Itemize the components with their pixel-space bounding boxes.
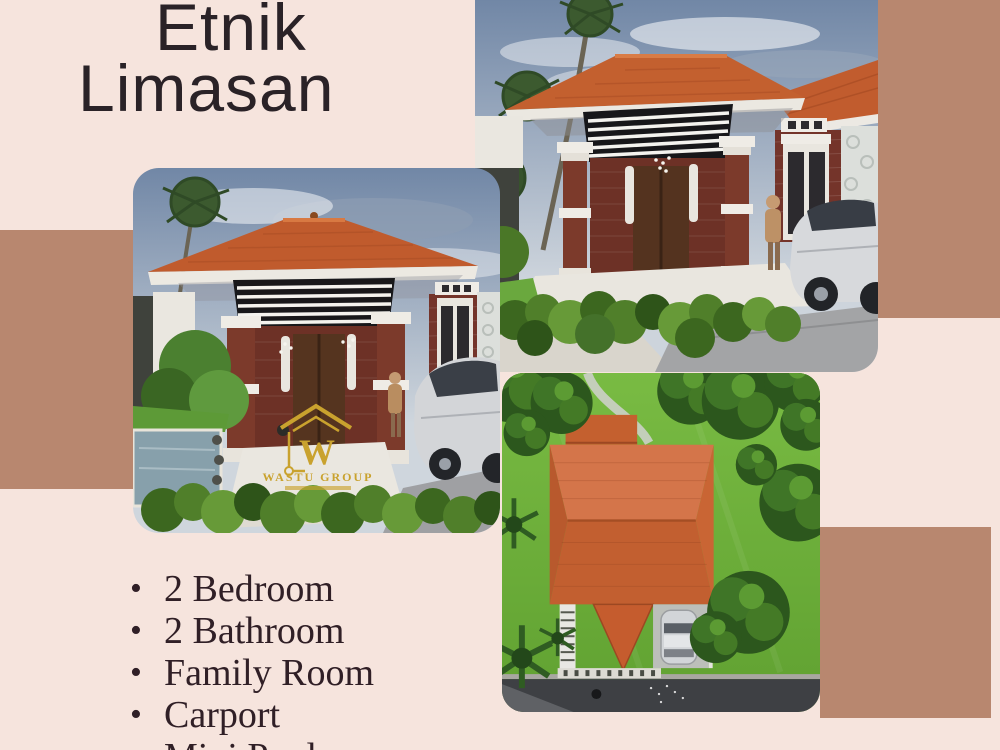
feature-item: • 2 Bathroom [130,610,374,652]
watermark-brand-text: WASTU GROUP [262,470,373,484]
feature-label: 2 Bedroom [164,568,334,610]
bullet-icon: • [130,736,164,750]
front-fence [558,668,661,678]
roof-aerial [550,415,714,678]
entry-door [243,326,393,448]
accent-block-left [0,230,133,489]
bullet-icon: • [130,652,164,694]
feature-label: Carport [164,694,280,736]
accent-block-top-right [878,0,1000,318]
feature-label: 2 Bathroom [164,610,344,652]
bullet-icon: • [130,610,164,652]
flyer-page: Etnik Limasan [0,0,1000,750]
feature-label: Family Room [164,652,374,694]
feature-label: Mini Pool [164,736,317,750]
car [414,357,500,483]
entry-door [590,156,730,274]
feature-item: • Family Room [130,652,374,694]
accent-block-bottom-right [820,527,991,718]
feature-item: • 2 Bedroom [130,568,374,610]
photo-front-view-secondary: W WASTU GROUP [133,168,500,533]
watermark-monogram: W [299,432,337,472]
feature-item: • Mini Pool [130,736,374,750]
page-title-line2: Limasan [78,55,334,121]
photo-aerial-view [502,373,820,712]
car [790,200,878,314]
road [502,674,820,712]
photo-front-view-main [475,0,878,372]
bullet-icon: • [130,694,164,736]
louvre-panel [583,104,733,162]
feature-item: • Carport [130,694,374,736]
feature-list: • 2 Bedroom • 2 Bathroom • Family Room •… [130,568,374,750]
bullet-icon: • [130,568,164,610]
